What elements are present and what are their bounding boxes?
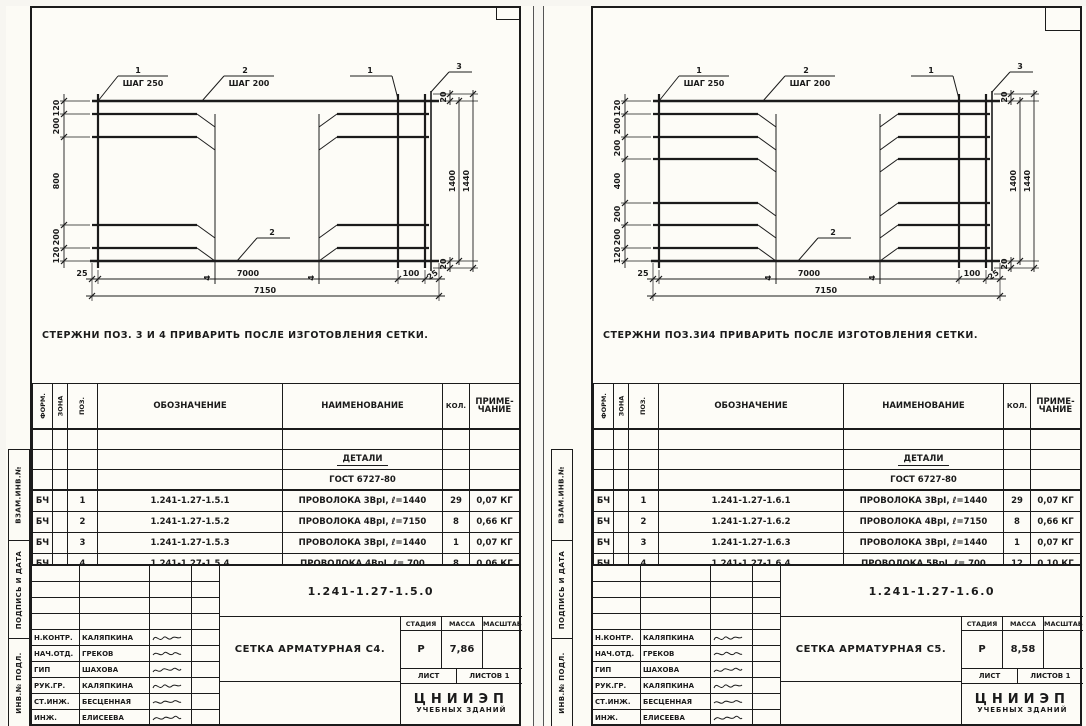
scale-value: [483, 631, 522, 669]
role: РУК.ГР.: [32, 678, 80, 694]
col-naim: НАИМЕНОВАНИЕ: [844, 384, 1004, 430]
dim-20-bottom: 20: [439, 258, 448, 270]
col-naim: НАИМЕНОВАНИЕ: [283, 384, 443, 430]
title-block-s5: Н.КОНТР.КАЛЯПКИНА НАЧ.ОТД.ГРЕКОВ ГИПШАХО…: [593, 564, 1080, 724]
person-name: ЕЛИСЕЕВА: [80, 710, 150, 726]
dim-left-4: 120: [52, 246, 61, 263]
col-poz: ПОЗ.: [68, 384, 98, 430]
step-label-250: ШАГ 250: [684, 79, 725, 88]
signature: [711, 694, 753, 710]
pos-label-1: 1: [696, 66, 702, 75]
spec-header-row: ФОРМ. ЗОНА ПОЗ. ОБОЗНАЧЕНИЕ НАИМЕНОВАНИЕ…: [594, 384, 1081, 430]
role: ГИП: [593, 662, 641, 678]
spec-group-row: ДЕТАЛИ: [33, 450, 520, 470]
signature: [150, 678, 192, 694]
dim-20-top: 20: [439, 91, 448, 103]
mesh-drawing-s5: 1 ШАГ 250 2 ШАГ 200 1 3 2 4 4 120 200 20…: [593, 44, 1080, 344]
col-kol: КОЛ.: [1004, 384, 1031, 430]
spec-empty-row: [594, 429, 1081, 450]
mass-value: 7,86: [442, 631, 483, 669]
stamp-box-vzam-inv: ВЗАМ.ИНВ.№: [551, 449, 573, 540]
weld-note: СТЕРЖНИ ПОЗ.3И4 ПРИВАРИТЬ ПОСЛЕ ИЗГОТОВЛ…: [603, 330, 1077, 341]
drawing-title: СЕТКА АРМАТУРНАЯ С5.: [781, 617, 961, 682]
title-block-signatures: Н.КОНТР.КАЛЯПКИНА НАЧ.ОТД.ГРЕКОВ ГИПШАХО…: [32, 566, 220, 724]
title-block-main: 1.241-1.27-1.5.0 СЕТКА АРМАТУРНАЯ С4. СТ…: [220, 566, 522, 724]
col-oboz: ОБОЗНАЧЕНИЕ: [659, 384, 844, 430]
col-poz: ПОЗ.: [629, 384, 659, 430]
step-label-200: ШАГ 200: [229, 79, 270, 88]
scale-value: [1044, 631, 1083, 669]
person-name: КАЛЯПКИНА: [80, 630, 150, 646]
dim-25-left: 25: [76, 269, 88, 278]
pos-label-2b: 2: [269, 228, 275, 237]
stamp-box-podpis-data: ПОДПИСЬ И ДАТА: [551, 540, 573, 638]
stage-mass-scale-header: СТАДИЯ МАССА МАСШТАБ: [401, 617, 522, 631]
spec-group-row: ДЕТАЛИ: [594, 450, 1081, 470]
org-subtitle: УЧЕБНЫХ ЗДАНИЙ: [977, 707, 1067, 715]
col-prim: ПРИМЕ-ЧАНИЕ: [470, 384, 520, 430]
signature: [711, 678, 753, 694]
side-stamp-strip: ВЗАМ.ИНВ.№ ПОДПИСЬ И ДАТА ИНВ.№ ПОДЛ.: [551, 449, 573, 726]
dim-left-0: 120: [52, 99, 61, 116]
sheet-s5: ВЗАМ.ИНВ.№ ПОДПИСЬ И ДАТА ИНВ.№ ПОДЛ.: [543, 6, 1086, 726]
spec-table-s4: ФОРМ. ЗОНА ПОЗ. ОБОЗНАЧЕНИЕ НАИМЕНОВАНИЕ…: [32, 383, 520, 576]
mesh-drawing-s4: 1 ШАГ 250 2 ШАГ 200 1 3 2 4 4 120 200 80…: [32, 44, 519, 344]
spec-row-2: БЧ2 1.241-1.27-1.6.2ПРОВОЛОКА 4ВрI, ℓ=71…: [594, 512, 1081, 533]
spec-gost-row: ГОСТ 6727-80: [33, 470, 520, 491]
person-name: ШАХОВА: [80, 662, 150, 678]
dim-20-bottom: 20: [1000, 258, 1009, 270]
group-title: ДЕТАЛИ: [898, 454, 950, 466]
dim-left-0: 120: [613, 99, 622, 116]
role: Н.КОНТР.: [32, 630, 80, 646]
signature: [150, 646, 192, 662]
pos-label-2b: 2: [830, 228, 836, 237]
dim-20-top: 20: [1000, 91, 1009, 103]
dim-1400: 1400: [448, 169, 457, 192]
drawing-frame: 1 ШАГ 250 2 ШАГ 200 1 3 2 4 4 120 200 20…: [591, 6, 1082, 726]
title-block-signatures: Н.КОНТР.КАЛЯПКИНА НАЧ.ОТД.ГРЕКОВ ГИПШАХО…: [593, 566, 781, 724]
dim-1400: 1400: [1009, 169, 1018, 192]
corner-box: [496, 8, 519, 20]
col-form: ФОРМ.: [594, 384, 614, 430]
role: ИНЖ.: [32, 710, 80, 726]
signature: [711, 646, 753, 662]
listov-label: ЛИСТОВ 1: [457, 669, 522, 684]
col-zona: ЗОНА: [53, 384, 68, 430]
pos-label-2: 2: [242, 66, 248, 75]
document-number: 1.241-1.27-1.5.0: [220, 566, 522, 617]
spec-row-3: БЧ3 1.241-1.27-1.6.3ПРОВОЛОКА 3ВрI, ℓ=14…: [594, 533, 1081, 554]
organization: ЦНИИЭП УЧЕБНЫХ ЗДАНИЙ: [962, 684, 1083, 724]
sheet-count-row: ЛИСТ ЛИСТОВ 1: [962, 669, 1083, 684]
signature: [150, 694, 192, 710]
person-name: ГРЕКОВ: [80, 646, 150, 662]
dim-left-1: 200: [613, 117, 622, 134]
dim-100: 100: [403, 269, 420, 278]
signature: [711, 710, 753, 726]
pos-label-4b: 4: [307, 275, 316, 281]
stage-mass-scale-values: Р 7,86: [401, 631, 522, 669]
spec-table-s5: ФОРМ. ЗОНА ПОЗ. ОБОЗНАЧЕНИЕ НАИМЕНОВАНИЕ…: [593, 383, 1081, 576]
dim-7000: 7000: [237, 269, 260, 278]
org-subtitle: УЧЕБНЫХ ЗДАНИЙ: [416, 707, 506, 715]
spec-empty-row: [33, 429, 520, 450]
spec-header-row: ФОРМ. ЗОНА ПОЗ. ОБОЗНАЧЕНИЕ НАИМЕНОВАНИЕ…: [33, 384, 520, 430]
dim-left-6: 120: [613, 246, 622, 263]
drawing-frame: 1 ШАГ 250 2 ШАГ 200 1 3 2 4 4 120 200 80…: [30, 6, 521, 726]
document-number: 1.241-1.27-1.6.0: [781, 566, 1083, 617]
person-name: БЕСЦЕННАЯ: [641, 694, 711, 710]
person-name: КАЛЯПКИНА: [80, 678, 150, 694]
signature: [711, 662, 753, 678]
mass-value: 8,58: [1003, 631, 1044, 669]
sheet-count-row: ЛИСТ ЛИСТОВ 1: [401, 669, 522, 684]
col-prim: ПРИМЕ-ЧАНИЕ: [1031, 384, 1081, 430]
person-name: БЕСЦЕННАЯ: [80, 694, 150, 710]
role: РУК.ГР.: [593, 678, 641, 694]
pos-label-2: 2: [803, 66, 809, 75]
side-stamp-strip: ВЗАМ.ИНВ.№ ПОДПИСЬ И ДАТА ИНВ.№ ПОДЛ.: [8, 449, 30, 726]
col-zona: ЗОНА: [614, 384, 629, 430]
col-oboz: ОБОЗНАЧЕНИЕ: [98, 384, 283, 430]
title-block-main: 1.241-1.27-1.6.0 СЕТКА АРМАТУРНАЯ С5. СТ…: [781, 566, 1083, 724]
organization: ЦНИИЭП УЧЕБНЫХ ЗДАНИЙ: [401, 684, 522, 724]
dim-left-3: 400: [613, 172, 622, 189]
list-label: ЛИСТ: [401, 669, 457, 684]
role: СТ.ИНЖ.: [593, 694, 641, 710]
drawing-title: СЕТКА АРМАТУРНАЯ С4.: [220, 617, 400, 682]
signature: [711, 630, 753, 646]
weld-note: СТЕРЖНИ ПОЗ. 3 И 4 ПРИВАРИТЬ ПОСЛЕ ИЗГОТ…: [42, 330, 516, 341]
stage-value: Р: [962, 631, 1003, 669]
role: НАЧ.ОТД.: [593, 646, 641, 662]
empty-cell: [220, 682, 400, 724]
pos-label-1r: 1: [928, 66, 934, 75]
person-name: КАЛЯПКИНА: [641, 678, 711, 694]
list-label: ЛИСТ: [962, 669, 1018, 684]
dim-100: 100: [964, 269, 981, 278]
dim-1440: 1440: [462, 169, 471, 192]
dim-7150: 7150: [815, 286, 838, 295]
scanned-drawing-page: ВЗАМ.ИНВ.№ ПОДПИСЬ И ДАТА ИНВ.№ ПОДЛ.: [0, 0, 1086, 726]
role: СТ.ИНЖ.: [32, 694, 80, 710]
stamp-box-inv-podl: ИНВ.№ ПОДЛ.: [8, 638, 30, 726]
stage-value: Р: [401, 631, 442, 669]
pos-label-4a: 4: [764, 275, 773, 281]
person-name: КАЛЯПКИНА: [641, 630, 711, 646]
dim-left-5: 200: [613, 228, 622, 245]
dim-left-4: 200: [613, 205, 622, 222]
pos-label-3: 3: [456, 62, 462, 71]
dim-1440: 1440: [1023, 169, 1032, 192]
dim-left-1: 200: [52, 117, 61, 134]
gost-ref: ГОСТ 6727-80: [844, 470, 1004, 491]
sheet-s4: ВЗАМ.ИНВ.№ ПОДПИСЬ И ДАТА ИНВ.№ ПОДЛ.: [6, 6, 534, 726]
signature: [150, 710, 192, 726]
role: ИНЖ.: [593, 710, 641, 726]
spec-row-3: БЧ3 1.241-1.27-1.5.3ПРОВОЛОКА 3ВрI, ℓ=14…: [33, 533, 520, 554]
spec-gost-row: ГОСТ 6727-80: [594, 470, 1081, 491]
pos-label-3: 3: [1017, 62, 1023, 71]
dim-left-3: 200: [52, 228, 61, 245]
spec-row-1: БЧ1 1.241-1.27-1.5.1ПРОВОЛОКА 3ВрI, ℓ=14…: [33, 490, 520, 512]
person-name: ГРЕКОВ: [641, 646, 711, 662]
step-label-250: ШАГ 250: [123, 79, 164, 88]
dim-7000: 7000: [798, 269, 821, 278]
pos-label-4a: 4: [203, 275, 212, 281]
person-name: ШАХОВА: [641, 662, 711, 678]
role: НАЧ.ОТД.: [32, 646, 80, 662]
corner-box: [1045, 8, 1080, 31]
signature: [150, 662, 192, 678]
listov-label: ЛИСТОВ 1: [1018, 669, 1083, 684]
dim-7150: 7150: [254, 286, 277, 295]
spec-row-2: БЧ2 1.241-1.27-1.5.2ПРОВОЛОКА 4ВрI, ℓ=71…: [33, 512, 520, 533]
spec-row-1: БЧ1 1.241-1.27-1.6.1ПРОВОЛОКА 3ВрI, ℓ=14…: [594, 490, 1081, 512]
pos-label-1r: 1: [367, 66, 373, 75]
dim-25-left: 25: [637, 269, 649, 278]
pos-label-1: 1: [135, 66, 141, 75]
dim-left-2: 200: [613, 139, 622, 156]
stamp-box-podpis-data: ПОДПИСЬ И ДАТА: [8, 540, 30, 638]
dim-left-2: 800: [52, 172, 61, 189]
signature: [150, 630, 192, 646]
person-name: ЕЛИСЕЕВА: [641, 710, 711, 726]
col-kol: КОЛ.: [443, 384, 470, 430]
col-form: ФОРМ.: [33, 384, 53, 430]
group-title: ДЕТАЛИ: [337, 454, 389, 466]
role: Н.КОНТР.: [593, 630, 641, 646]
stage-mass-scale-values: Р 8,58: [962, 631, 1083, 669]
gost-ref: ГОСТ 6727-80: [283, 470, 443, 491]
empty-cell: [781, 682, 961, 724]
title-block-s4: Н.КОНТР.КАЛЯПКИНА НАЧ.ОТД.ГРЕКОВ ГИПШАХО…: [32, 564, 519, 724]
step-label-200: ШАГ 200: [790, 79, 831, 88]
stamp-box-inv-podl: ИНВ.№ ПОДЛ.: [551, 638, 573, 726]
stage-mass-scale-header: СТАДИЯ МАССА МАСШТАБ: [962, 617, 1083, 631]
pos-label-4b: 4: [868, 275, 877, 281]
stamp-box-vzam-inv: ВЗАМ.ИНВ.№: [8, 449, 30, 540]
role: ГИП: [32, 662, 80, 678]
